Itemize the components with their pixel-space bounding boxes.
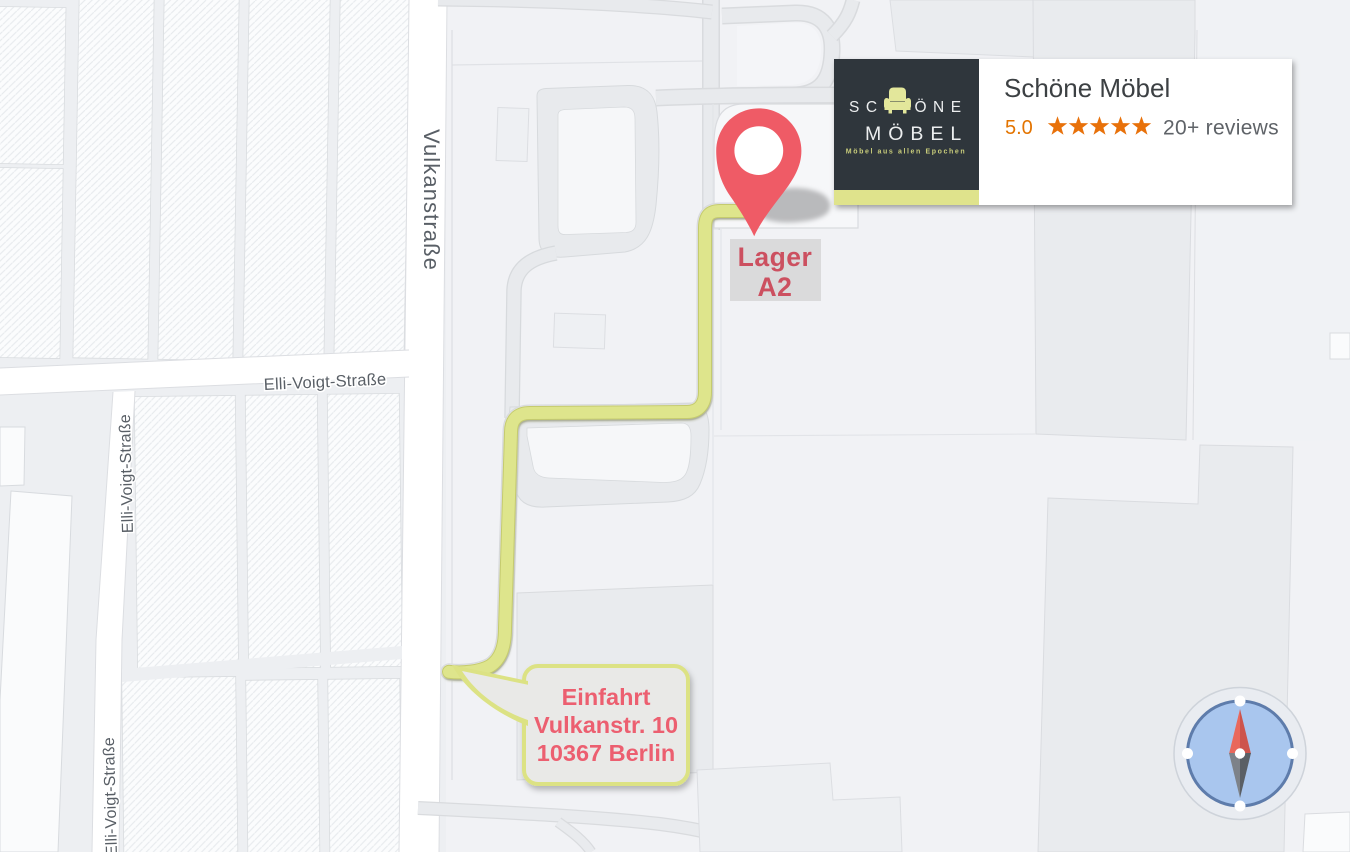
svg-text:Schöne Möbel: Schöne Möbel <box>1004 73 1170 103</box>
svg-text:Möbel aus allen Epochen: Möbel aus allen Epochen <box>846 149 966 156</box>
svg-text:Elli-Voigt-Straße: Elli-Voigt-Straße <box>101 737 121 852</box>
svg-text:Einfahrt: Einfahrt <box>562 684 651 710</box>
svg-text:ÖNE: ÖNE <box>915 98 968 116</box>
svg-text:5.0: 5.0 <box>1005 117 1033 139</box>
svg-text:Vulkanstr. 10: Vulkanstr. 10 <box>534 712 678 738</box>
svg-text:SC: SC <box>849 99 884 116</box>
svg-text:A2: A2 <box>758 272 793 302</box>
svg-text:MÖBEL: MÖBEL <box>865 123 968 145</box>
svg-text:20+ reviews: 20+ reviews <box>1163 117 1279 140</box>
svg-text:Elli-Voigt-Straße: Elli-Voigt-Straße <box>117 414 137 533</box>
svg-text:10367 Berlin: 10367 Berlin <box>537 740 675 766</box>
svg-text:Lager: Lager <box>738 242 813 272</box>
svg-text:Vulkanstraße: Vulkanstraße <box>419 129 444 271</box>
